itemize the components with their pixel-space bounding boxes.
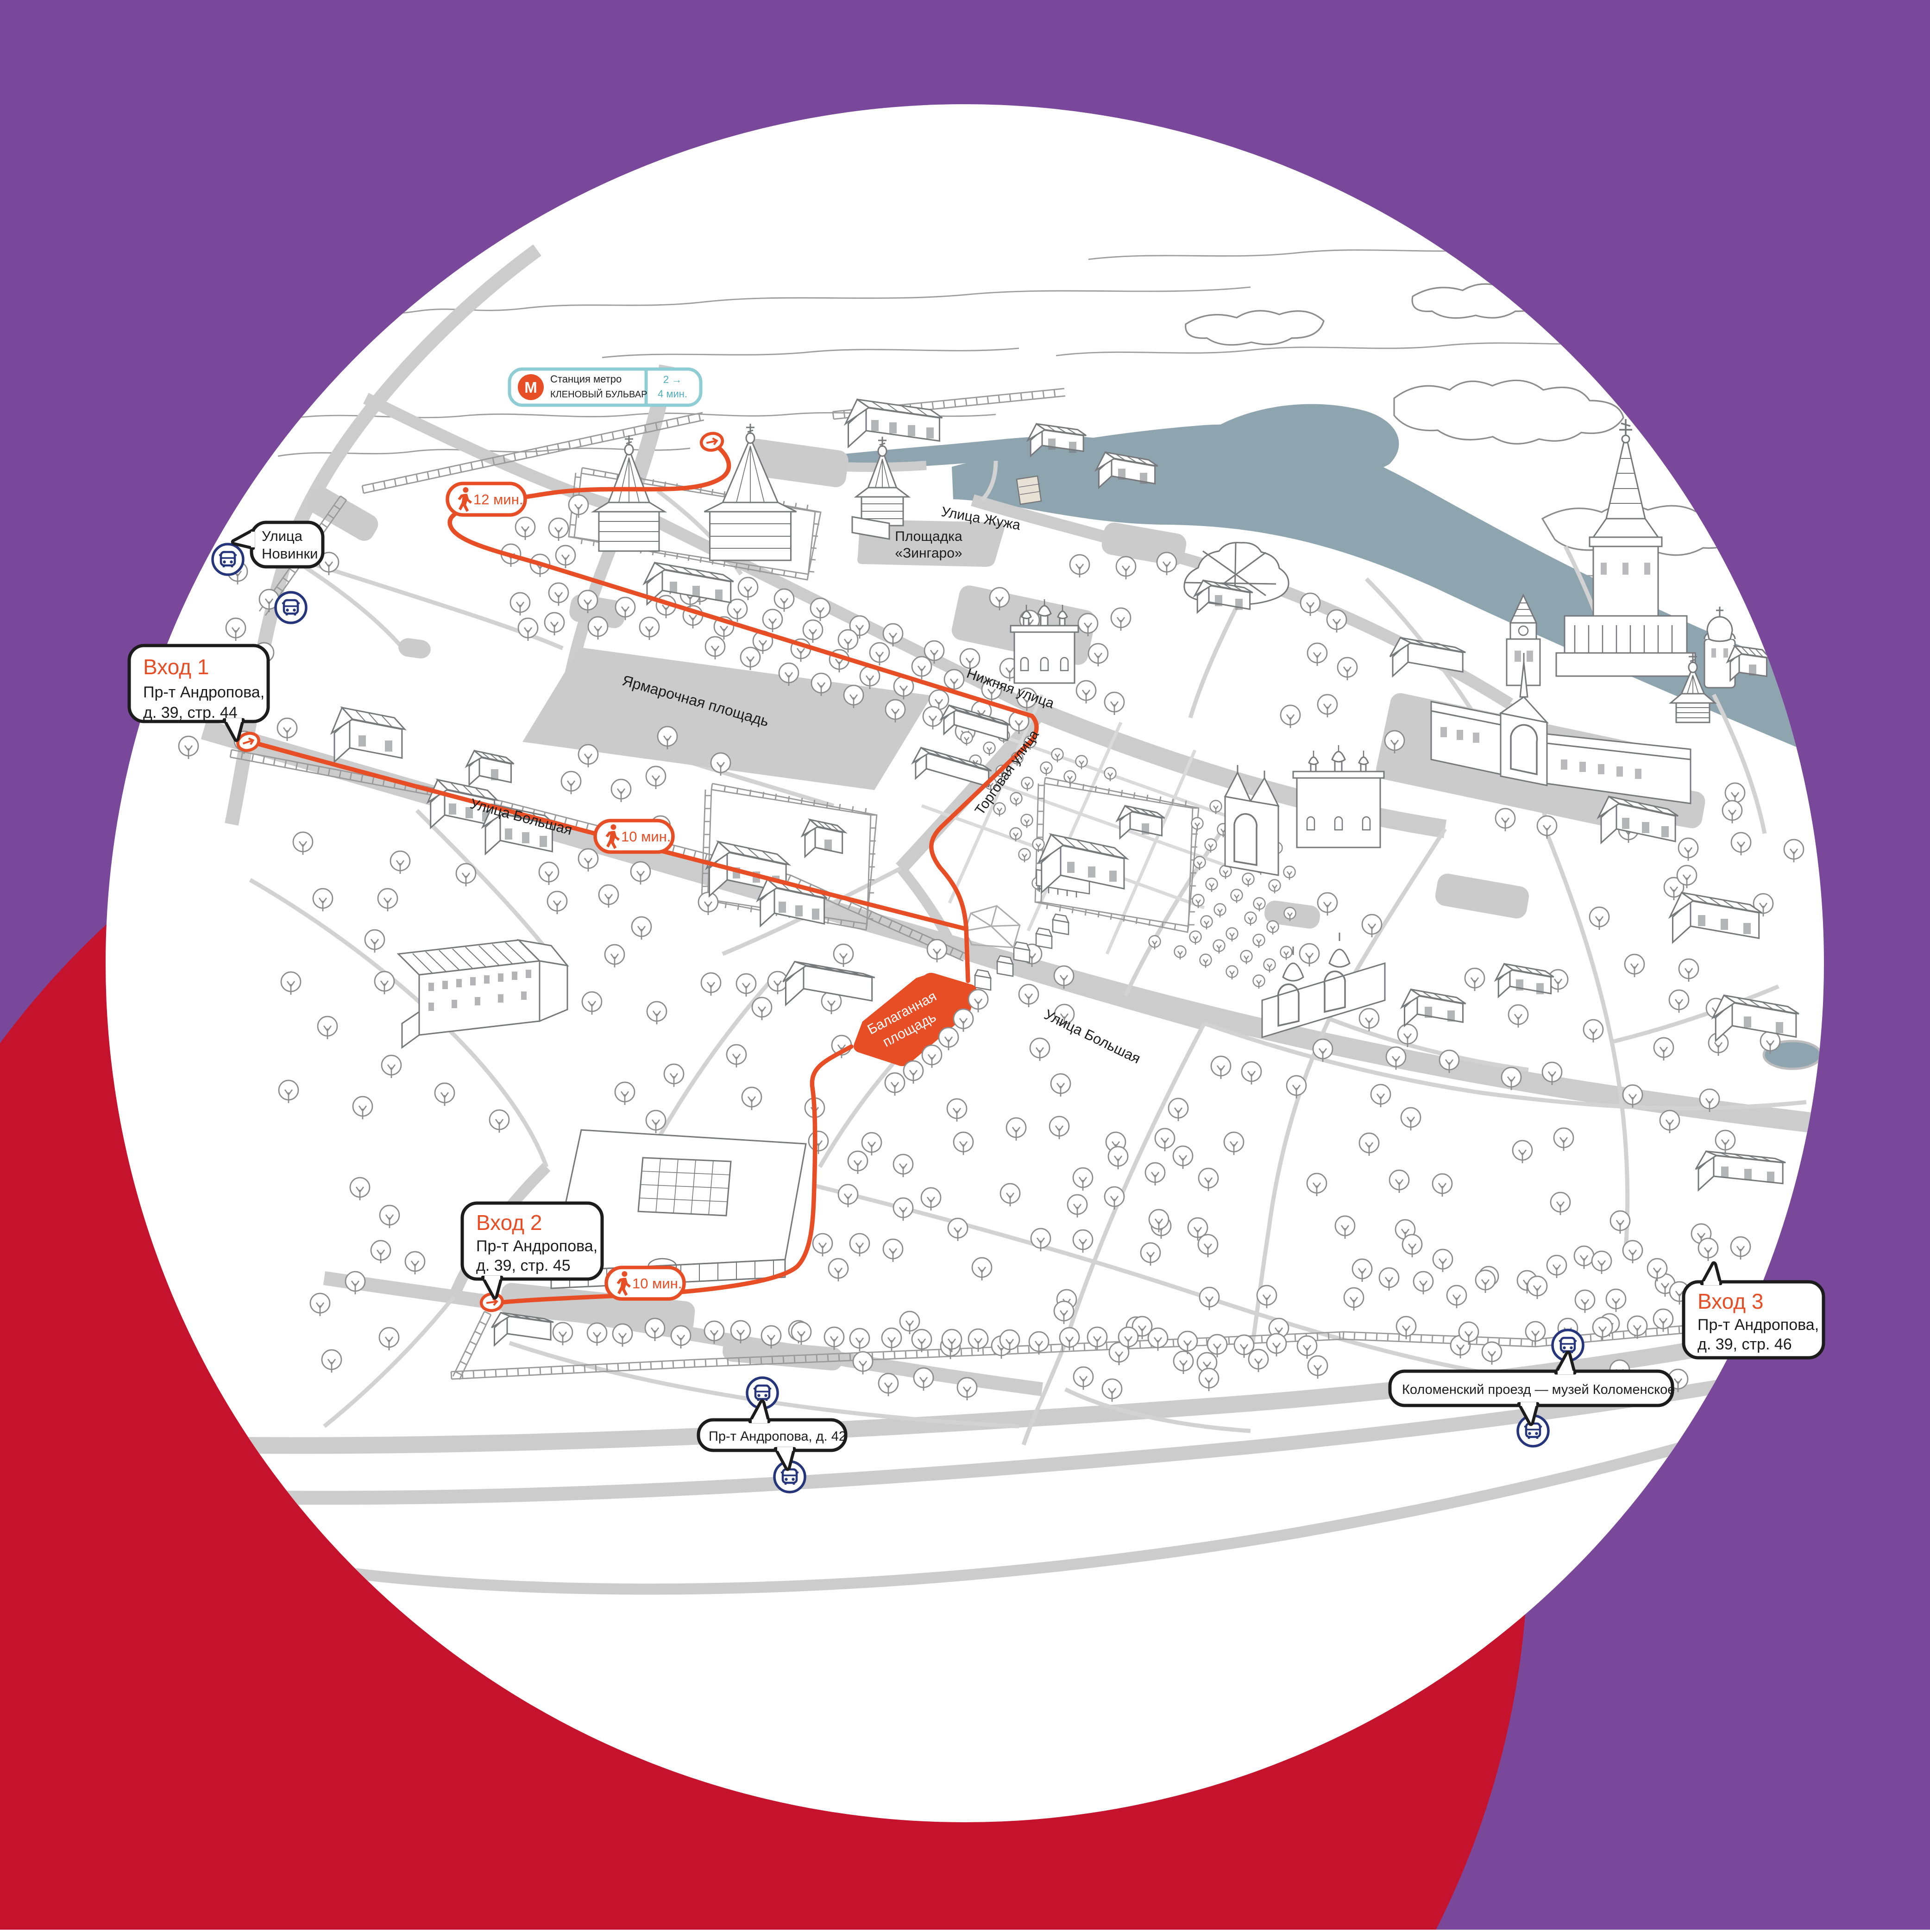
svg-text:Коломенский проезд — музей Кол: Коломенский проезд — музей Коломенское bbox=[1402, 1382, 1675, 1397]
svg-text:10 мин.: 10 мин. bbox=[621, 828, 671, 845]
svg-text:12 мин.: 12 мин. bbox=[473, 491, 523, 508]
svg-text:Вход 3: Вход 3 bbox=[1697, 1289, 1763, 1313]
svg-text:д. 39, стр. 46: д. 39, стр. 46 bbox=[1697, 1336, 1792, 1353]
svg-text:2 →: 2 → bbox=[663, 374, 682, 385]
svg-text:Станция метро: Станция метро bbox=[550, 373, 622, 385]
svg-text:КЛЕНОВЫЙ БУЛЬВАР: КЛЕНОВЫЙ БУЛЬВАР bbox=[550, 389, 647, 400]
svg-text:Новинки: Новинки bbox=[262, 546, 318, 562]
svg-text:Площадка: Площадка bbox=[895, 529, 962, 544]
svg-text:Пр-т Андропова, д. 42: Пр-т Андропова, д. 42 bbox=[709, 1429, 846, 1444]
svg-text:10 мин.: 10 мин. bbox=[632, 1275, 682, 1292]
svg-text:д. 39, стр. 45: д. 39, стр. 45 bbox=[476, 1257, 571, 1274]
svg-text:Пр-т Андропова,: Пр-т Андропова, bbox=[1697, 1316, 1819, 1334]
svg-text:Вход 2: Вход 2 bbox=[476, 1211, 542, 1235]
svg-text:4 мин.: 4 мин. bbox=[658, 388, 687, 400]
svg-text:Вход 1: Вход 1 bbox=[143, 655, 209, 679]
svg-text:«Зингаро»: «Зингаро» bbox=[895, 546, 962, 561]
svg-text:Пр-т Андропова,: Пр-т Андропова, bbox=[143, 684, 264, 701]
svg-text:М: М bbox=[524, 379, 537, 396]
svg-text:д. 39, стр. 44: д. 39, стр. 44 bbox=[143, 704, 238, 721]
svg-text:Пр-т Андропова,: Пр-т Андропова, bbox=[476, 1237, 597, 1255]
svg-text:Улица: Улица bbox=[262, 528, 303, 544]
